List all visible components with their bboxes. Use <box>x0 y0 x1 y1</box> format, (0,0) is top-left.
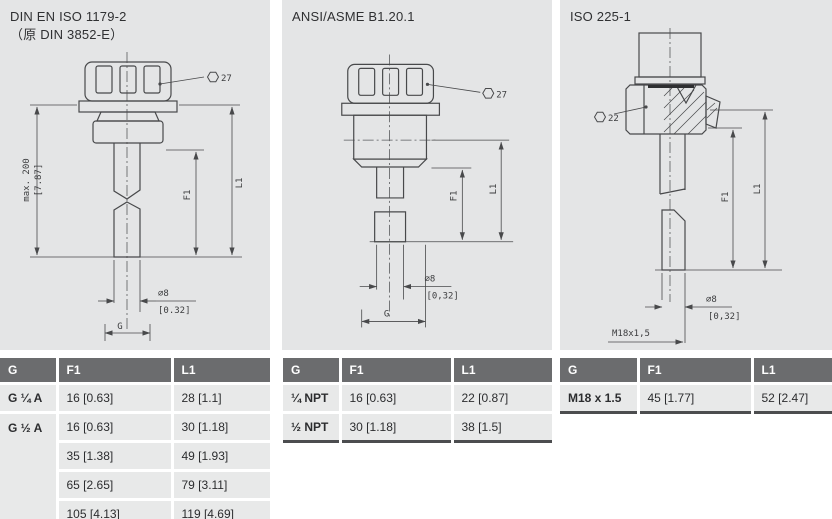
column-header: G <box>560 358 638 384</box>
column-header: L1 <box>172 358 270 384</box>
fitting-outline <box>79 62 177 257</box>
drawing-npt-fitting: 27 L1 F1 ∅8 [0,32] G <box>282 0 552 350</box>
cell-dimension-value: 65 [2.65] <box>57 471 172 500</box>
cell-thread-size <box>0 442 57 471</box>
cell-dimension-value: 105 [4.13] <box>57 500 172 519</box>
diameter-label: ∅8 <box>158 289 169 299</box>
diameter-inch-label: [0,32] <box>426 292 458 302</box>
column-header: F1 <box>340 358 452 384</box>
table-row: M18 x 1.545 [1.77]52 [2.47] <box>560 384 832 413</box>
dimension-table-npt: GF1L1 ¼ NPT16 [0.63]22 [0.87]½ NPT30 [1.… <box>283 358 552 443</box>
drawing-din-fitting: 27 max. 200 [7.87] L1 F1 ∅8 [0.32] G <box>0 0 270 350</box>
cell-dimension-value: 38 [1.5] <box>452 413 552 442</box>
l1-dim-label: L1 <box>753 184 763 195</box>
cell-thread-size: ½ NPT <box>283 413 340 442</box>
thread-dim-label: M18x1,5 <box>612 329 650 339</box>
cell-thread-size <box>0 500 57 519</box>
thread-dim-label: G <box>384 309 389 319</box>
cell-dimension-value: 35 [1.38] <box>57 442 172 471</box>
drawing-m18-fitting: 22 F1 L1 ∅8 [0,32] M18x1,5 <box>560 0 832 350</box>
fitting-outline <box>342 64 440 241</box>
dimension-lines <box>608 107 782 343</box>
cell-dimension-value: 16 [0.63] <box>340 384 452 413</box>
cell-dimension-value: 30 [1.18] <box>172 413 270 442</box>
leader-dot <box>644 105 647 108</box>
fitting-outline <box>626 33 720 270</box>
table-row: 35 [1.38]49 [1.93] <box>0 442 270 471</box>
cell-dimension-value: 52 [2.47] <box>752 384 832 413</box>
f1-dim-label: F1 <box>183 190 193 201</box>
column-header: L1 <box>752 358 832 384</box>
wrench-size-label: 27 <box>496 90 507 100</box>
cell-thread-size: G ¼ A <box>0 384 57 413</box>
standard-name: ISO 225-1 <box>570 8 631 26</box>
panel-title: DIN EN ISO 1179-2 （原 DIN 3852-E） <box>10 8 127 44</box>
dimension-table-din: GF1L1 G ¼ A16 [0.63]28 [1.1]G ½ A16 [0.6… <box>0 358 270 519</box>
column-header: F1 <box>57 358 172 384</box>
f1-dim-label: F1 <box>449 191 459 202</box>
standard-name-alt: （原 DIN 3852-E） <box>10 26 127 44</box>
table-header-row: GF1L1 <box>0 358 270 384</box>
table-row: ¼ NPT16 [0.63]22 [0.87] <box>283 384 552 413</box>
table-row: G ¼ A16 [0.63]28 [1.1] <box>0 384 270 413</box>
panel-title: ANSI/ASME B1.20.1 <box>292 8 415 26</box>
diameter-inch-label: [0.32] <box>158 306 191 316</box>
column-header: F1 <box>638 358 752 384</box>
standard-name: ANSI/ASME B1.20.1 <box>292 8 415 26</box>
hexagon-wrench-icon <box>595 112 606 122</box>
max-length-label: max. 200 <box>22 158 32 201</box>
l1-dim-label: L1 <box>489 184 499 195</box>
cell-dimension-value: 119 [4.69] <box>172 500 270 519</box>
wrench-size-label: 22 <box>608 114 619 124</box>
panel-title: ISO 225-1 <box>570 8 631 26</box>
panel-ansi-asme-b1-20-1: ANSI/ASME B1.20.1 <box>282 0 552 350</box>
diameter-label: ∅8 <box>706 295 717 305</box>
cell-dimension-value: 49 [1.93] <box>172 442 270 471</box>
cell-dimension-value: 30 [1.18] <box>340 413 452 442</box>
table-row: 105 [4.13]119 [4.69] <box>0 500 270 519</box>
table-row: 65 [2.65]79 [3.11] <box>0 471 270 500</box>
wrench-size-label: 27 <box>221 74 232 84</box>
hexagon-wrench-icon <box>483 89 494 99</box>
cell-dimension-value: 16 [0.63] <box>57 384 172 413</box>
cell-dimension-value: 28 [1.1] <box>172 384 270 413</box>
diameter-label: ∅8 <box>424 275 435 285</box>
diameter-inch-label: [0,32] <box>708 312 741 322</box>
thread-dim-label: G <box>117 322 122 332</box>
standard-name: DIN EN ISO 1179-2 <box>10 8 127 26</box>
table-row: G ½ A16 [0.63]30 [1.18] <box>0 413 270 442</box>
dimension-lines <box>30 77 242 341</box>
table-header-row: GF1L1 <box>560 358 832 384</box>
cell-thread-size: ¼ NPT <box>283 384 340 413</box>
cell-dimension-value: 79 [3.11] <box>172 471 270 500</box>
max-length-inch-label: [7.87] <box>34 164 44 197</box>
cell-dimension-value: 45 [1.77] <box>638 384 752 413</box>
dimension-table-m18: GF1L1 M18 x 1.545 [1.77]52 [2.47] <box>560 358 832 414</box>
leader-dot <box>158 82 161 85</box>
table-row: ½ NPT30 [1.18]38 [1.5] <box>283 413 552 442</box>
cell-dimension-value: 16 [0.63] <box>57 413 172 442</box>
column-header: G <box>0 358 57 384</box>
cell-dimension-value: 22 [0.87] <box>452 384 552 413</box>
leader-dot <box>426 83 429 86</box>
table-header-row: GF1L1 <box>283 358 552 384</box>
column-header: L1 <box>452 358 552 384</box>
panel-din-en-iso-1179-2: DIN EN ISO 1179-2 （原 DIN 3852-E） <box>0 0 270 350</box>
cell-thread-size: G ½ A <box>0 413 57 442</box>
cell-thread-size <box>0 471 57 500</box>
l1-dim-label: L1 <box>235 178 245 189</box>
f1-dim-label: F1 <box>721 192 731 203</box>
hexagon-wrench-icon <box>208 72 219 82</box>
panel-iso-225-1: ISO 225-1 <box>560 0 832 350</box>
thermowell-datasheet-page: DIN EN ISO 1179-2 （原 DIN 3852-E） <box>0 0 832 519</box>
column-header: G <box>283 358 340 384</box>
cell-thread-size: M18 x 1.5 <box>560 384 638 413</box>
